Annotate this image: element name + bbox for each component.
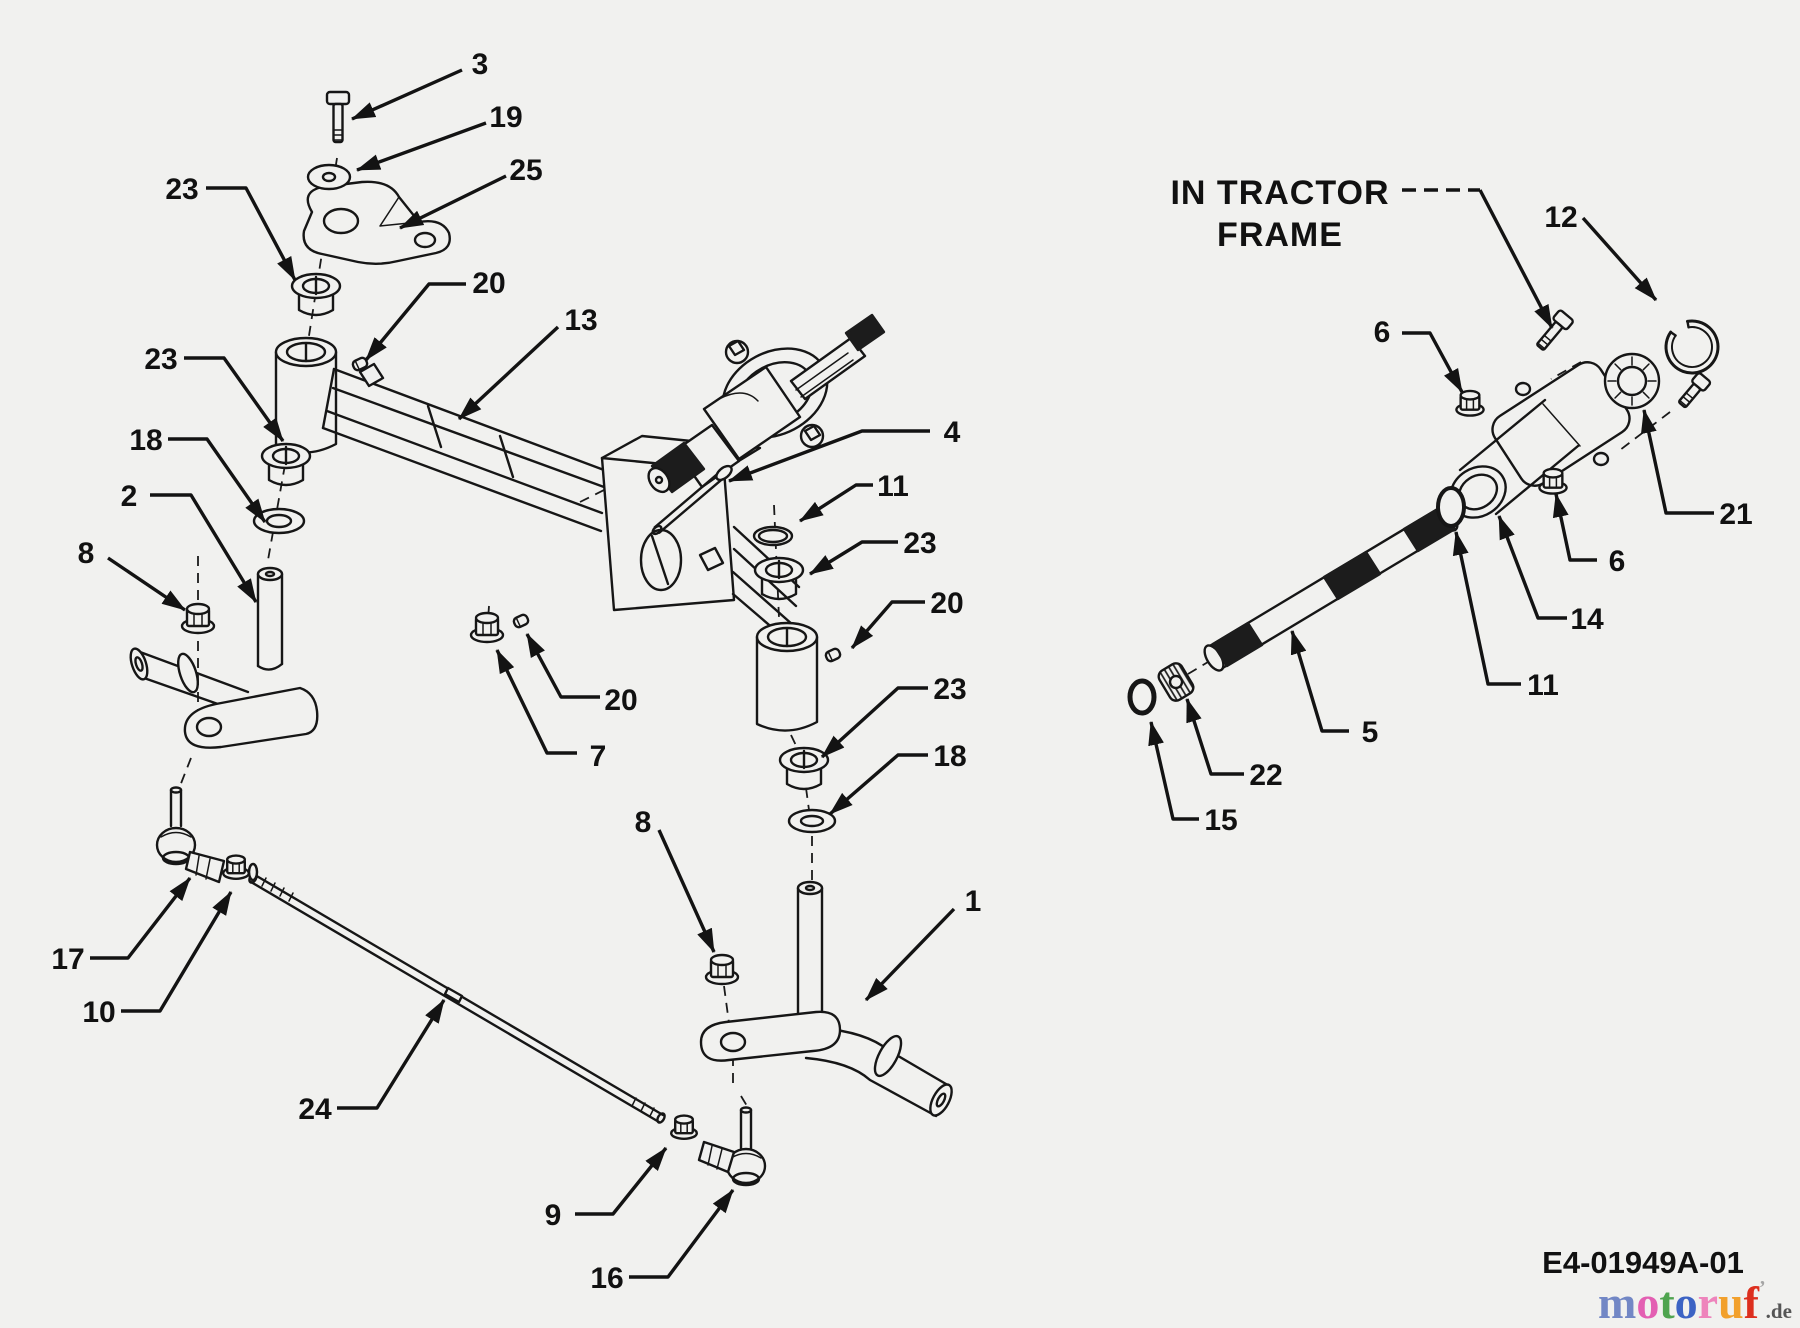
- note-leader: [1480, 190, 1552, 328]
- leader-line: [357, 123, 486, 170]
- part-number-label: 14: [1570, 603, 1604, 636]
- flange-bushing-23: [780, 748, 828, 789]
- leader-line: [629, 1190, 733, 1277]
- callout-5: 5: [1292, 631, 1378, 749]
- part-number-label: 20: [604, 684, 637, 717]
- callout-12: 12: [1544, 201, 1656, 300]
- washer-19: [308, 165, 350, 189]
- steering-shaft-5: [1201, 502, 1461, 673]
- flat-washer-18: [789, 810, 835, 832]
- callout-15: 15: [1151, 722, 1238, 837]
- leader-line: [810, 542, 898, 574]
- leader-line: [1402, 333, 1462, 392]
- leader-line: [121, 892, 231, 1011]
- callout-17: 17: [51, 878, 190, 976]
- callout-7: 7: [497, 650, 606, 773]
- flange-nut-8: [182, 604, 214, 633]
- callout-20: 20: [366, 267, 506, 360]
- leader-line: [1644, 410, 1714, 513]
- part-number-label: 17: [51, 943, 84, 976]
- leader-line: [1151, 722, 1199, 819]
- set-screw-20: [513, 614, 530, 629]
- part-number-label: 18: [129, 424, 162, 457]
- part-number-label: 4: [944, 416, 961, 449]
- leader-line: [459, 327, 558, 419]
- leader-line: [497, 650, 577, 753]
- part-number-label: 1: [965, 885, 982, 918]
- right-spindle-1: [701, 882, 956, 1119]
- callout-8: 8: [635, 806, 714, 952]
- leader-line: [866, 909, 954, 1000]
- callout-20: 20: [852, 587, 964, 648]
- hex-bolt-3: [327, 92, 349, 142]
- exploded-view-front-axle-diagram: 3192523201323182841123202318872017102491…: [0, 0, 1800, 1328]
- diagram-texts: IN TRACTORFRAMEE4-01949A-01motoruf’.de: [1170, 174, 1791, 1328]
- part-number-label: 25: [509, 154, 542, 187]
- flange-bushing-23: [292, 274, 340, 315]
- part-number-label: 23: [144, 343, 177, 376]
- part-number-label: 19: [489, 101, 522, 134]
- leader-line: [800, 485, 873, 521]
- leader-line: [108, 558, 185, 610]
- callout-9: 9: [545, 1148, 666, 1232]
- part-number-label: 10: [82, 996, 115, 1029]
- leader-line: [1583, 218, 1656, 300]
- hex-nut-6: [1539, 469, 1566, 494]
- hex-bolt-12: [1533, 309, 1574, 353]
- leader-line: [830, 755, 928, 814]
- part-number-label: 23: [165, 173, 198, 206]
- part-number-label: 18: [933, 740, 966, 773]
- part-number-label: 20: [472, 267, 505, 300]
- part-number-label: 11: [877, 470, 909, 503]
- tie-rod-24: [248, 872, 666, 1124]
- callout-1: 1: [866, 885, 981, 1000]
- o-ring-11: [754, 527, 792, 545]
- leader-line: [168, 439, 265, 522]
- part-number-label: 2: [121, 480, 138, 513]
- centerline: [741, 1096, 747, 1106]
- part-number-label: 5: [1362, 716, 1379, 749]
- leader-line: [400, 176, 506, 228]
- callout-6: 6: [1374, 316, 1462, 392]
- part-number-label: 11: [1527, 669, 1559, 702]
- set-screw-20: [825, 648, 842, 663]
- in-tractor-frame-note: FRAME: [1217, 216, 1343, 254]
- leader-line: [366, 284, 466, 360]
- leader-line: [1292, 631, 1349, 731]
- hex-nut-6: [1456, 391, 1483, 416]
- part-number-label: 21: [1719, 498, 1752, 531]
- part-number-label: 22: [1249, 759, 1282, 792]
- centerline: [180, 758, 191, 786]
- jam-nut-9: [671, 1116, 697, 1139]
- hex-bolt-right: [1676, 372, 1711, 410]
- flange-bushing-23: [755, 558, 803, 599]
- part-number-label: 15: [1204, 804, 1237, 837]
- part-number-label: 23: [933, 673, 966, 706]
- leader-line: [1187, 699, 1244, 774]
- part-number-label: 9: [545, 1199, 562, 1232]
- callout-25: 25: [400, 154, 543, 228]
- flat-washer-18: [254, 509, 304, 533]
- o-ring-11: [1438, 488, 1464, 526]
- part-number-label: 3: [472, 48, 489, 81]
- leader-line: [352, 70, 462, 119]
- part-number-label: 23: [903, 527, 936, 560]
- callout-6: 6: [1556, 494, 1625, 578]
- jam-nut-10: [223, 856, 249, 879]
- part-number-label: 8: [635, 806, 652, 839]
- callout-20: 20: [527, 634, 638, 717]
- in-tractor-frame-note: IN TRACTOR: [1170, 174, 1389, 212]
- leader-line: [527, 634, 600, 697]
- part-number-label: 6: [1609, 545, 1626, 578]
- leader-line: [1556, 494, 1597, 560]
- snap-ring-15: [1130, 681, 1154, 713]
- callout-2: 2: [121, 480, 256, 602]
- callout-14: 14: [1499, 516, 1604, 636]
- part-number-label: 20: [930, 587, 963, 620]
- part-number-label: 8: [78, 537, 95, 570]
- snap-ring-12: [1666, 321, 1718, 373]
- callout-3: 3: [352, 48, 488, 119]
- callout-18: 18: [830, 740, 967, 814]
- callout-10: 10: [82, 892, 231, 1029]
- leader-line: [1456, 532, 1521, 684]
- leader-line: [659, 830, 714, 952]
- part-number-label: 7: [590, 740, 607, 773]
- parts-diagram-page: 3192523201323182841123202318872017102491…: [0, 0, 1800, 1328]
- callout-8: 8: [78, 537, 185, 610]
- centerline: [1188, 662, 1208, 674]
- left-spindle-2: [127, 568, 317, 748]
- callout-24: 24: [298, 1000, 444, 1126]
- callout-19: 19: [357, 101, 523, 170]
- leader-line: [1499, 516, 1567, 618]
- flange-bushing-23: [262, 444, 310, 485]
- callout-11: 11: [800, 470, 909, 521]
- part-number-label: 6: [1374, 316, 1391, 349]
- callout-21: 21: [1644, 410, 1753, 531]
- tie-rod-end-16: [699, 1108, 765, 1186]
- callout-23: 23: [144, 343, 283, 441]
- leader-line: [90, 878, 190, 958]
- part-number-label: 16: [590, 1262, 623, 1295]
- callout-13: 13: [459, 304, 598, 419]
- needle-bearing-22: [1156, 661, 1196, 704]
- steering-arm-25: [304, 182, 450, 264]
- leader-line: [337, 1000, 444, 1108]
- leader-line: [575, 1148, 666, 1214]
- part-number-label: 13: [564, 304, 597, 337]
- callout-22: 22: [1187, 699, 1283, 792]
- callout-23: 23: [165, 173, 295, 280]
- leader-line: [852, 602, 925, 648]
- part-number-label: 12: [1544, 201, 1577, 234]
- tie-rod-end-17: [157, 788, 224, 883]
- ball-bearing-21: [1605, 354, 1659, 408]
- part-number-label: 24: [298, 1093, 332, 1126]
- flange-nut-7: [471, 613, 503, 642]
- centerline: [806, 788, 809, 810]
- drawing-number: E4-01949A-01: [1542, 1245, 1744, 1280]
- callout-16: 16: [590, 1190, 733, 1295]
- leader-line: [822, 688, 928, 757]
- flange-nut-8: [706, 955, 738, 984]
- leader-line: [184, 358, 283, 441]
- callout-23: 23: [810, 527, 937, 574]
- leader-line: [206, 188, 295, 280]
- dashed-centerlines: [180, 158, 1670, 1106]
- leader-line: [150, 495, 256, 602]
- motoruf-logo: motoruf’.de: [1598, 1277, 1792, 1328]
- lock-washer-10: [249, 864, 257, 880]
